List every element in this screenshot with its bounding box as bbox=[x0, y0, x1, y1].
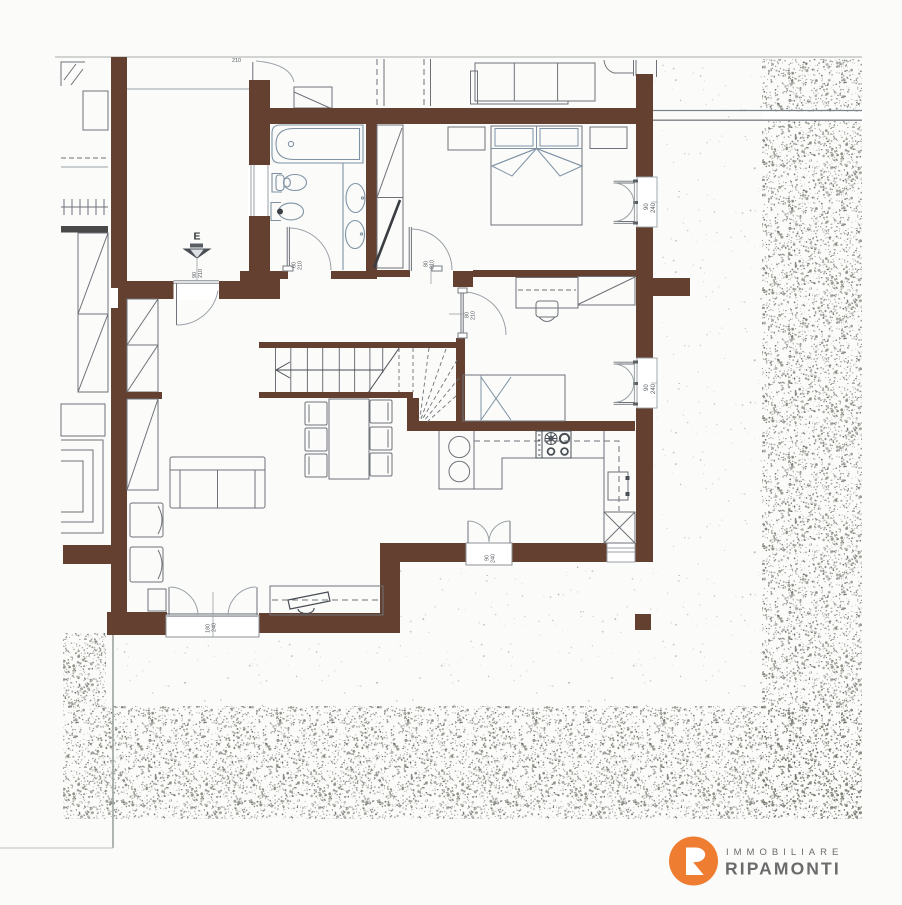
svg-text:210: 210 bbox=[298, 261, 304, 270]
svg-text:240: 240 bbox=[491, 554, 497, 563]
svg-text:240: 240 bbox=[212, 623, 218, 632]
svg-text:240: 240 bbox=[651, 383, 657, 394]
svg-text:210: 210 bbox=[232, 58, 241, 64]
svg-text:E: E bbox=[194, 231, 201, 243]
svg-text:90: 90 bbox=[644, 203, 650, 210]
svg-text:90: 90 bbox=[644, 384, 650, 391]
svg-text:210: 210 bbox=[430, 260, 436, 269]
svg-text:IMMOBILIARE: IMMOBILIARE bbox=[726, 847, 843, 858]
svg-text:240: 240 bbox=[651, 202, 657, 213]
svg-text:RIPAMONTI: RIPAMONTI bbox=[725, 859, 841, 879]
svg-text:210: 210 bbox=[198, 269, 204, 278]
svg-text:210: 210 bbox=[471, 311, 477, 320]
